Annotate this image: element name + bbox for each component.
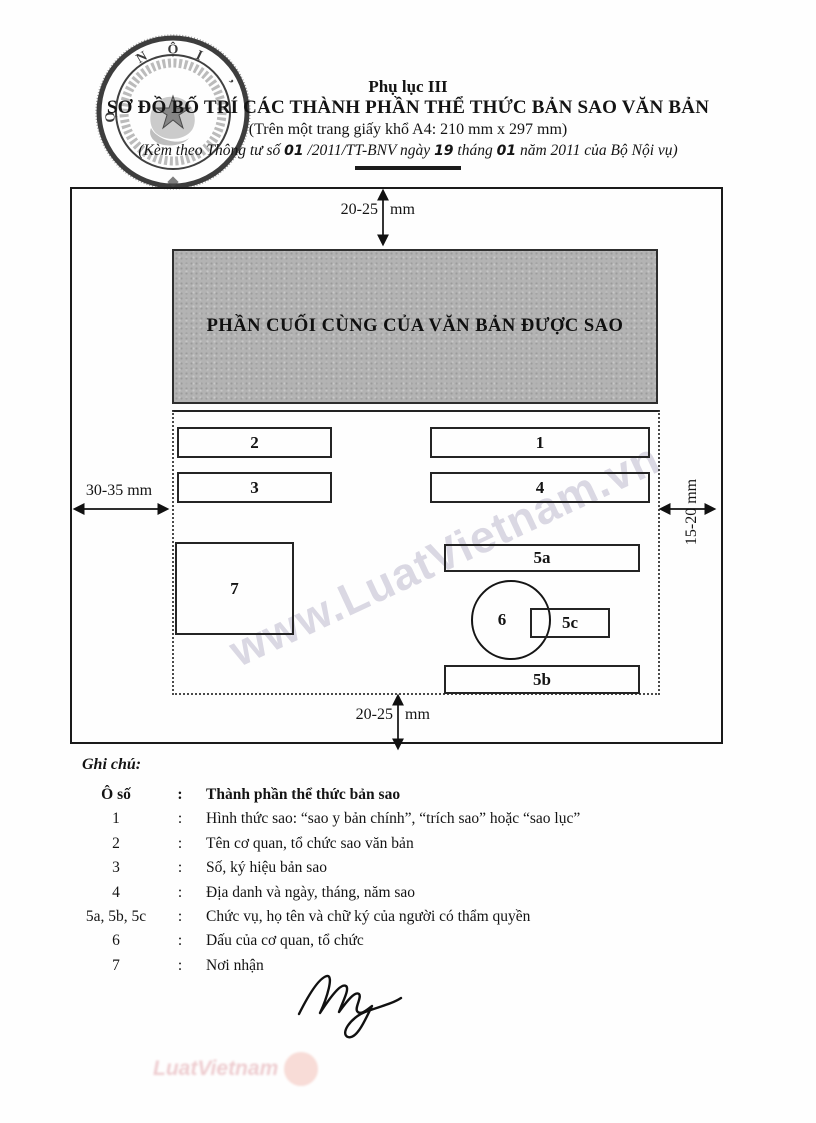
handwritten-number: 19 xyxy=(434,143,453,159)
issuance-note: (Kèm theo Thông tư số 01 /2011/TT-BNV ng… xyxy=(0,140,816,162)
scanned-document-page: N Ộ I Ọ ’ Phụ lục III SƠ ĐỒ BỐ TRÍ CÁC T… xyxy=(0,0,816,1123)
top-margin-unit: mm xyxy=(390,201,415,219)
document-header: Phụ lục III SƠ ĐỒ BỐ TRÍ CÁC THÀNH PHẦN … xyxy=(0,76,816,170)
bottom-margin-value: 20-25 xyxy=(311,706,393,724)
legend-separator: : xyxy=(162,832,198,856)
legend-row-label: 6 xyxy=(70,929,162,953)
issuance-text: năm 2011 của Bộ Nội vụ) xyxy=(516,142,678,159)
appendix-label: Phụ lục III xyxy=(0,76,816,97)
footer-brand-text: LuatVietnam xyxy=(153,1057,278,1081)
legend-row-description: Nơi nhận xyxy=(198,954,760,978)
footer-brand-logo: LuatVietnam xyxy=(153,1046,323,1092)
page-title: SƠ ĐỒ BỐ TRÍ CÁC THÀNH PHẦN THỂ THỨC BẢN… xyxy=(0,97,816,119)
legend-row-description: Hình thức sao: “sao y bản chính”, “trích… xyxy=(198,807,760,831)
legend-separator: : xyxy=(162,929,198,953)
stamp-letter: Ộ xyxy=(168,41,179,58)
legend-row-label: 4 xyxy=(70,881,162,905)
legend-separator: : xyxy=(162,905,198,929)
top-margin-value: 20-25 xyxy=(296,201,378,219)
stamp-letter: N xyxy=(134,49,150,67)
legend: Ghi chú: Ô số : Thành phần thể thức bản … xyxy=(70,756,760,978)
paper-size-note: (Trên một trang giấy khổ A4: 210 mm x 29… xyxy=(0,119,816,140)
legend-row-description: Chức vụ, họ tên và chữ ký của người có t… xyxy=(198,905,760,929)
box-5c: 5c xyxy=(530,608,610,638)
handwritten-number: 01 xyxy=(284,143,303,159)
legend-separator: : xyxy=(162,807,198,831)
a4-page-outline: PHẦN CUỐI CÙNG CỦA VĂN BẢN ĐƯỢC SAO 2 1 … xyxy=(70,187,723,744)
box-4: 4 xyxy=(430,472,650,503)
box-1: 1 xyxy=(430,427,650,458)
shaded-region-label: PHẦN CUỐI CÙNG CỦA VĂN BẢN ĐƯỢC SAO xyxy=(207,316,624,337)
box-2: 2 xyxy=(177,427,332,458)
legend-separator: : xyxy=(162,954,198,978)
title-underline xyxy=(355,166,461,170)
box-5a: 5a xyxy=(444,544,640,572)
handwritten-signature xyxy=(299,976,401,1037)
legend-separator: : xyxy=(162,856,198,880)
legend-heading: Ghi chú: xyxy=(82,756,760,774)
legend-row-label: 1 xyxy=(70,807,162,831)
legend-row-description: Tên cơ quan, tổ chức sao văn bản xyxy=(198,832,760,856)
box-5b: 5b xyxy=(444,665,640,694)
issuance-text: /2011/TT-BNV ngày xyxy=(304,142,434,159)
legend-row-description: Dấu của cơ quan, tổ chức xyxy=(198,929,760,953)
legend-header-label: Ô số xyxy=(70,783,162,807)
left-margin-label: 30-35 mm xyxy=(70,482,168,500)
issuance-text: (Kèm theo Thông tư số xyxy=(138,142,284,159)
legend-header-description: Thành phần thể thức bản sao xyxy=(198,783,760,807)
bottom-margin-unit: mm xyxy=(405,706,430,724)
stamp-letter: I xyxy=(193,48,204,64)
legend-row-description: Địa danh và ngày, tháng, năm sao xyxy=(198,881,760,905)
box-7: 7 xyxy=(175,542,294,635)
legend-row-label: 5a, 5b, 5c xyxy=(70,905,162,929)
box-3: 3 xyxy=(177,472,332,503)
legend-row-label: 7 xyxy=(70,954,162,978)
shaded-region: PHẦN CUỐI CÙNG CỦA VĂN BẢN ĐƯỢC SAO xyxy=(172,249,658,404)
legend-separator: : xyxy=(162,881,198,905)
legend-row-label: 3 xyxy=(70,856,162,880)
legend-row-description: Số, ký hiệu bản sao xyxy=(198,856,760,880)
issuance-text: tháng xyxy=(454,142,497,159)
legend-row-label: 2 xyxy=(70,832,162,856)
legend-table: Ô số : Thành phần thể thức bản sao 1 : H… xyxy=(70,783,760,978)
handwritten-number: 01 xyxy=(497,143,516,159)
legend-separator: : xyxy=(162,783,198,807)
right-margin-label: 15-20 mm xyxy=(679,476,705,548)
footer-brand-circle-icon xyxy=(284,1052,318,1086)
